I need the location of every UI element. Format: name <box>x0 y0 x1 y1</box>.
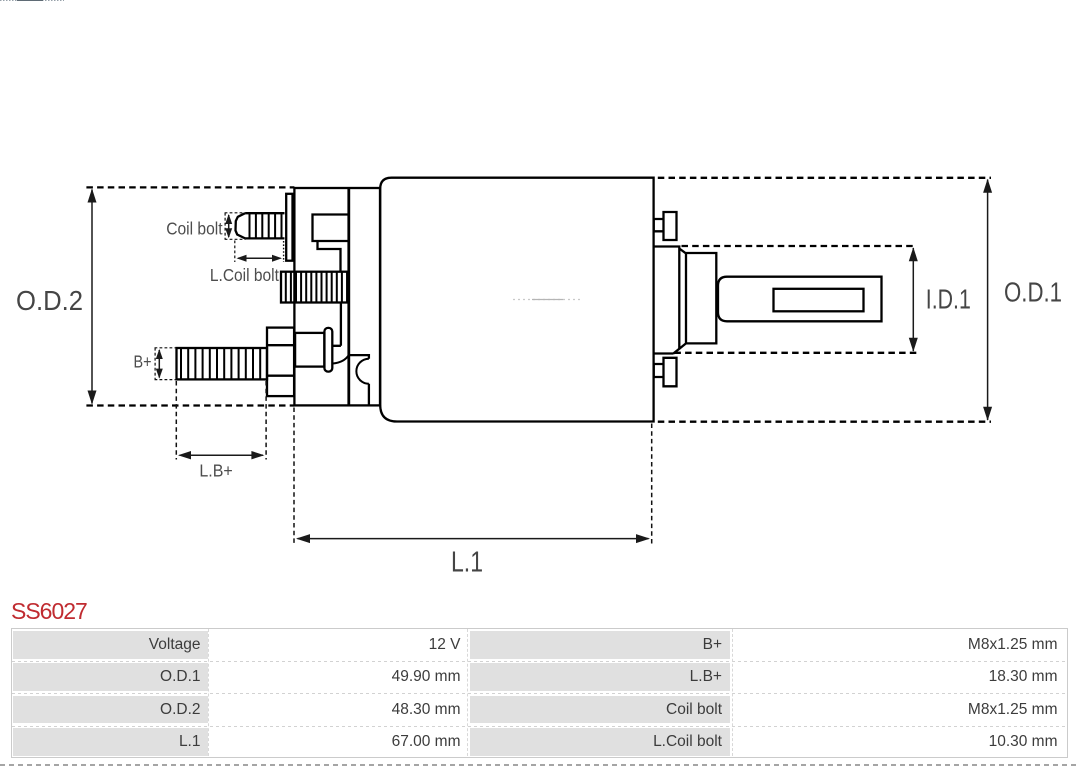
svg-text:O.D.2: O.D.2 <box>16 285 83 316</box>
svg-text:L.B+: L.B+ <box>199 460 232 480</box>
svg-text:I.D.1: I.D.1 <box>926 284 971 315</box>
svg-text:B+: B+ <box>134 351 152 371</box>
svg-text:L.Coil bolt: L.Coil bolt <box>210 265 279 285</box>
svg-text:L.1: L.1 <box>451 546 483 578</box>
svg-text:Coil bolt: Coil bolt <box>166 218 223 238</box>
svg-text:O.D.1: O.D.1 <box>1004 277 1062 308</box>
